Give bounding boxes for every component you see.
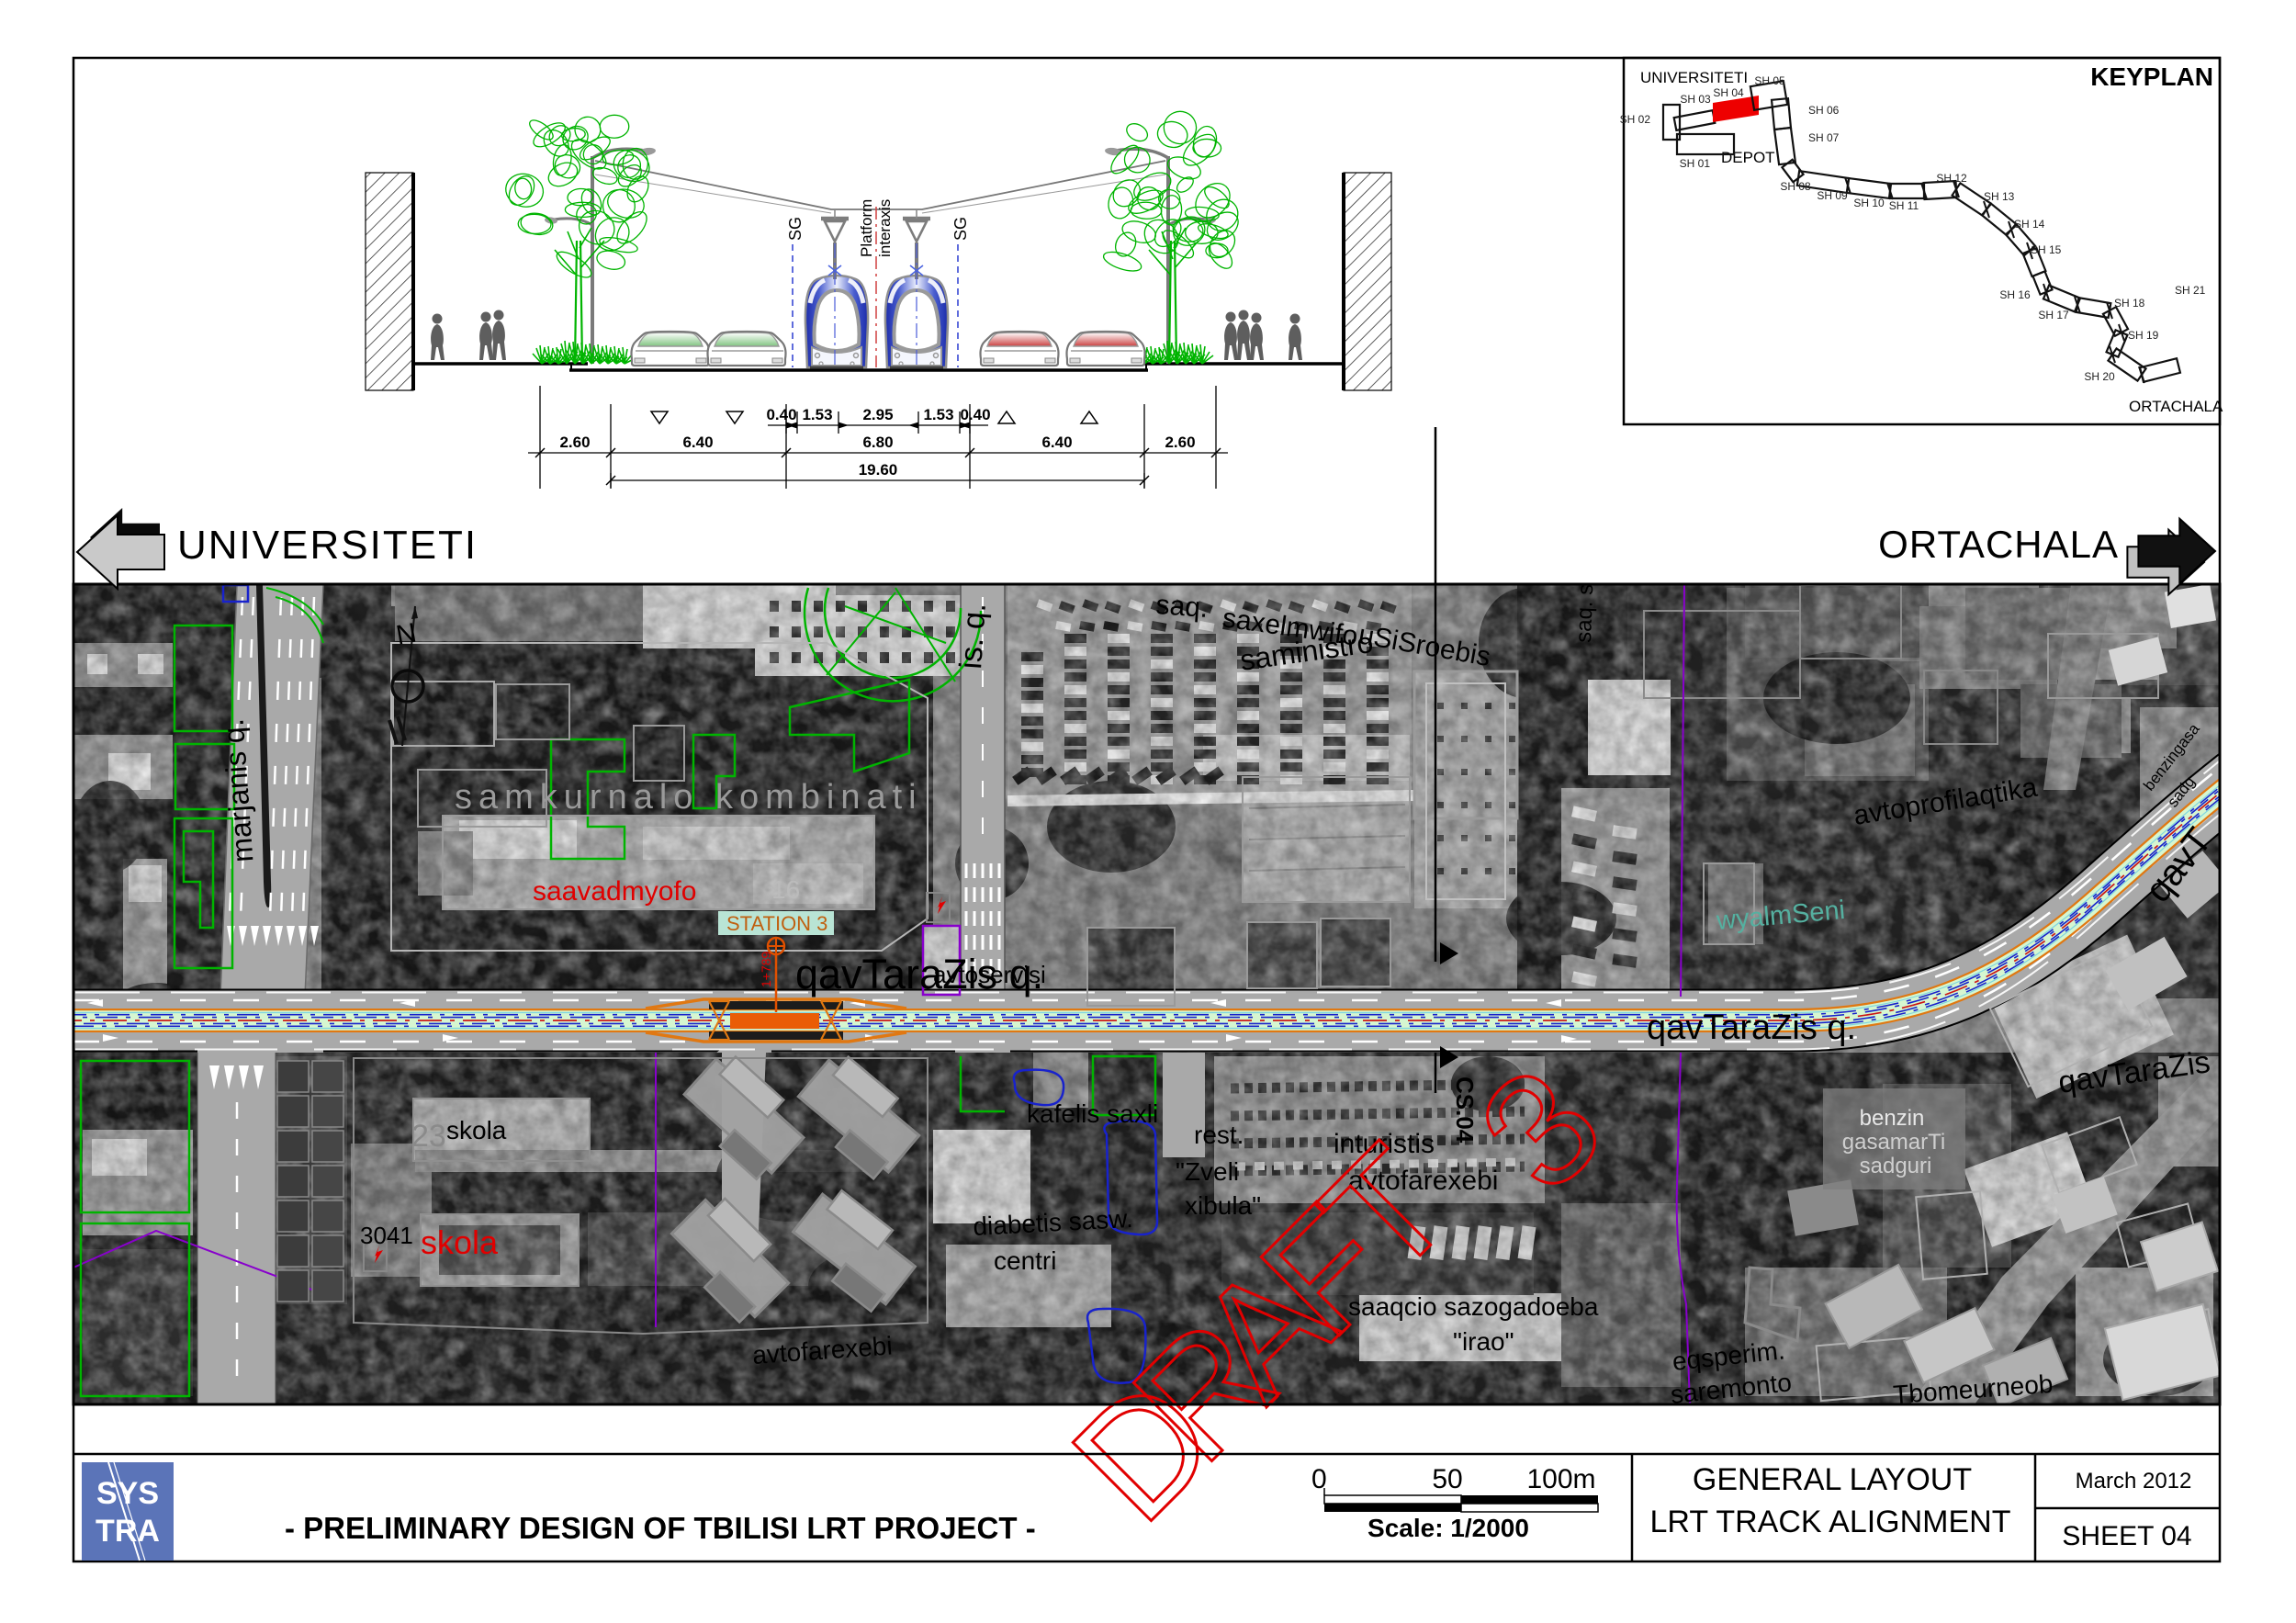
svg-text:6.40: 6.40 (1041, 434, 1072, 451)
svg-text:qavTaraZis q.: qavTaraZis q. (795, 951, 1043, 997)
svg-text:Scale: 1/2000: Scale: 1/2000 (1367, 1514, 1529, 1542)
svg-text:SH 05: SH 05 (1754, 74, 1785, 87)
svg-text:SH 04: SH 04 (1713, 86, 1744, 99)
svg-text:SH 02: SH 02 (1620, 113, 1651, 126)
svg-text:6.80: 6.80 (862, 434, 893, 451)
svg-text:saavadmyofo: saavadmyofo (533, 876, 696, 907)
svg-text:SH 21: SH 21 (2175, 284, 2206, 297)
svg-text:SG: SG (951, 217, 970, 241)
svg-text:SH 14: SH 14 (2014, 218, 2045, 231)
svg-text:saq. s: saq. s (1571, 583, 1598, 643)
svg-text:is. q.: is. q. (953, 602, 993, 670)
svg-text:TRA: TRA (96, 1514, 160, 1549)
svg-text:100m: 100m (1526, 1464, 1595, 1494)
svg-text:SH 19: SH 19 (2128, 329, 2159, 342)
svg-text:50: 50 (1432, 1464, 1462, 1494)
svg-text:GENERAL LAYOUT: GENERAL LAYOUT (1693, 1462, 1972, 1497)
svg-text:3041: 3041 (360, 1222, 413, 1249)
svg-text:1.53: 1.53 (802, 406, 832, 423)
svg-text:19.60: 19.60 (859, 461, 898, 479)
svg-text:interaxis: interaxis (876, 199, 894, 257)
svg-text:0.40: 0.40 (960, 406, 990, 423)
svg-text:SYS: SYS (96, 1476, 159, 1511)
svg-text:DEPOT: DEPOT (1721, 149, 1775, 166)
svg-text:SHEET 04: SHEET 04 (2062, 1521, 2191, 1551)
svg-text:SH 16: SH 16 (1999, 288, 2031, 301)
svg-text:- PRELIMINARY DESIGN OF TBILIS: - PRELIMINARY DESIGN OF TBILISI LRT PROJ… (285, 1511, 1036, 1545)
svg-text:SH 20: SH 20 (2084, 370, 2115, 383)
svg-text:KEYPLAN: KEYPLAN (2090, 62, 2213, 91)
svg-text:LRT TRACK ALIGNMENT: LRT TRACK ALIGNMENT (1650, 1505, 2011, 1539)
svg-text:SH 17: SH 17 (2038, 309, 2069, 321)
svg-text:SH 07: SH 07 (1808, 131, 1840, 144)
svg-text:UNIVERSITETI: UNIVERSITETI (1640, 69, 1748, 86)
svg-text:SH 01: SH 01 (1680, 157, 1711, 170)
svg-text:skola: skola (446, 1116, 507, 1144)
svg-text:1+789: 1+789 (759, 951, 773, 987)
svg-text:6.40: 6.40 (682, 434, 713, 451)
svg-text:samkurnalo kombinati: samkurnalo kombinati (455, 778, 923, 817)
svg-text:1.53: 1.53 (923, 406, 953, 423)
svg-text:centri: centri (994, 1246, 1056, 1275)
svg-text:"irao": "irao" (1453, 1327, 1514, 1356)
svg-text:0.40: 0.40 (766, 406, 796, 423)
svg-text:SH 13: SH 13 (1984, 190, 2015, 203)
svg-text:saq.: saq. (1155, 590, 1210, 624)
svg-text:SH 12: SH 12 (1936, 172, 1967, 185)
svg-text:SH 11: SH 11 (1889, 199, 1919, 212)
svg-text:Platform: Platform (858, 199, 875, 257)
svg-text:gasamarTi: gasamarTi (1842, 1130, 1945, 1155)
svg-text:SG: SG (786, 217, 805, 241)
svg-text:SH 09: SH 09 (1817, 189, 1848, 202)
svg-text:SH 15: SH 15 (2031, 243, 2062, 256)
svg-text:ORTACHALA: ORTACHALA (1878, 523, 2119, 566)
svg-text:2.60: 2.60 (559, 434, 590, 451)
svg-text:rest.: rest. (1194, 1121, 1244, 1149)
svg-text:"Zveli: "Zveli (1176, 1157, 1239, 1186)
svg-text:2.95: 2.95 (862, 406, 893, 423)
svg-text:2.60: 2.60 (1165, 434, 1195, 451)
svg-text:SH 08: SH 08 (1780, 180, 1811, 193)
svg-text:UNIVERSITETI: UNIVERSITETI (177, 523, 478, 568)
svg-text:ORTACHALA: ORTACHALA (2129, 398, 2223, 415)
svg-text:March 2012: March 2012 (2076, 1469, 2192, 1493)
svg-text:skola: skola (421, 1223, 499, 1261)
svg-text:benzin: benzin (1860, 1106, 1925, 1131)
svg-text:SH 10: SH 10 (1853, 197, 1885, 209)
svg-text:kafelis saxli: kafelis saxli (1027, 1099, 1158, 1128)
svg-text:sadguri: sadguri (1860, 1154, 1932, 1178)
svg-text:SH 03: SH 03 (1680, 93, 1711, 106)
svg-text:STATION 3: STATION 3 (726, 912, 827, 935)
svg-text:SH 06: SH 06 (1808, 104, 1840, 117)
svg-text:qavTaraZis q.: qavTaraZis q. (1647, 1009, 1856, 1047)
svg-text:SH 18: SH 18 (2114, 297, 2145, 310)
svg-text:16: 16 (771, 875, 800, 904)
svg-text:23: 23 (411, 1119, 446, 1154)
svg-text:xibula": xibula" (1185, 1191, 1261, 1220)
